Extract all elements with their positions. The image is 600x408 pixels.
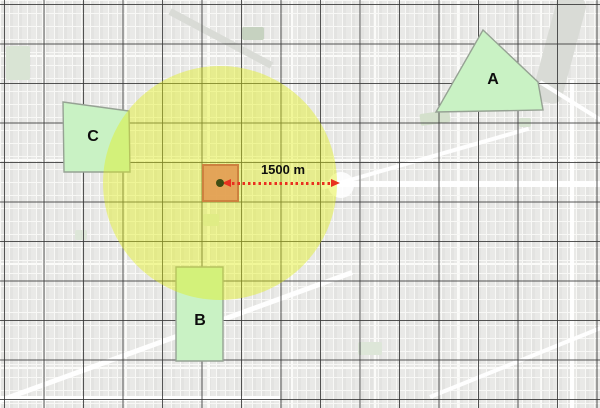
zone-b-label: B: [185, 312, 215, 330]
arrowhead-right-icon: [331, 179, 340, 187]
zone-c-label: C: [78, 128, 108, 146]
zone-a-label: A: [478, 71, 508, 89]
distance-arrow: [222, 178, 340, 188]
distance-label: 1500 m: [246, 162, 320, 177]
site-center-dot: [216, 179, 224, 187]
map-canvas: 1500 m A B C: [0, 0, 600, 408]
arrow-dotted-line: [232, 182, 330, 185]
